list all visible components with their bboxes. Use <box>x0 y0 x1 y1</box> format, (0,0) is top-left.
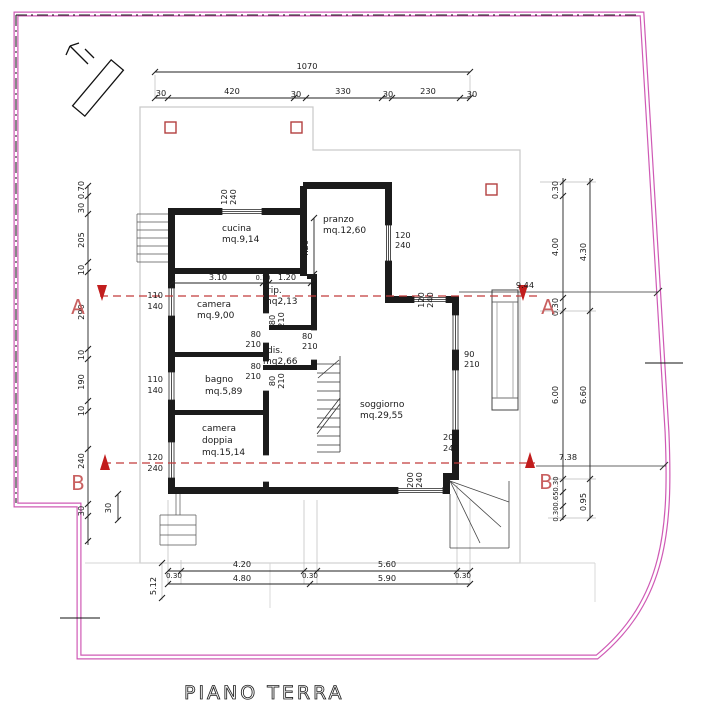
floor-title: PIANO TERRA <box>184 682 345 704</box>
room-label: mq.15,14 <box>202 448 245 458</box>
dim-label: 240 <box>414 472 424 488</box>
dim-label: 120 <box>147 452 163 462</box>
interior-stairs <box>317 356 340 452</box>
dim-label: 140 <box>147 385 163 395</box>
dim-label: 80 <box>302 331 312 341</box>
dim-label: 30 <box>103 503 113 513</box>
dim-label: 4.20 <box>233 559 251 569</box>
dim-label: 210 <box>464 359 480 369</box>
dim-label: 240 <box>147 463 163 473</box>
corner-fan-steps <box>450 481 509 548</box>
section-arrow <box>97 285 107 301</box>
dim-label: 190 <box>76 374 86 390</box>
room-label: mq.29,55 <box>360 411 403 421</box>
dim-label: 10 <box>76 350 86 360</box>
dim-label: 1.20 <box>278 272 296 282</box>
dim-label: 0.30 <box>302 571 318 580</box>
dim-label: 230 <box>420 86 436 96</box>
room-label: mq2,13 <box>263 297 298 307</box>
dim-label: 10 <box>76 406 86 416</box>
exterior-steps-top <box>137 214 168 262</box>
room-label: soggiorno <box>360 400 405 410</box>
room-label: bagno <box>205 375 234 385</box>
dim-label: 30 <box>383 89 393 99</box>
dim-label: 5.60 <box>378 559 396 569</box>
dim-label: 5.90 <box>378 573 396 583</box>
span-lines <box>459 288 668 470</box>
room-label: mq.12,60 <box>323 226 366 236</box>
dim-label: 0.30 <box>166 571 182 580</box>
dim-label: 0.70 <box>76 181 86 199</box>
dim-label: 30 <box>291 89 301 99</box>
dim-label: 210 <box>276 373 286 389</box>
room-label: cucina <box>222 224 251 234</box>
section-arrow <box>525 452 535 468</box>
dim-label: 10 <box>76 265 86 275</box>
room-label: mq2,66 <box>263 357 298 367</box>
dim-label: 0.30 <box>552 506 560 521</box>
pillar-marker <box>165 122 176 133</box>
boundary-inner-line <box>16 14 668 657</box>
dim-label: 4.30 <box>578 243 588 261</box>
room-label: mq.9,00 <box>197 311 235 321</box>
boundary-dashdot-line <box>16 15 640 503</box>
room-label: pranzo <box>323 215 354 225</box>
room-label: rip. <box>267 286 282 296</box>
room-label: mq.9,14 <box>222 235 260 245</box>
dim-label: 7.38 <box>559 452 577 462</box>
dim-label: 5.12 <box>148 577 158 595</box>
dim-label: 140 <box>147 301 163 311</box>
room-label: camera <box>202 424 236 434</box>
dim-label: 200 <box>443 432 459 442</box>
dim-label: 4.80 <box>233 573 251 583</box>
dim-label: 240 <box>425 292 435 308</box>
dim-label: 1070 <box>297 61 318 71</box>
dim-label: 0.65 <box>552 491 560 506</box>
room-label: dis. <box>267 346 283 356</box>
dim-label: 210 <box>245 339 261 349</box>
dim-label: 4.20 <box>300 240 310 258</box>
pillar-marker <box>486 184 497 195</box>
section-letter: A <box>541 295 555 319</box>
chimney-detail <box>492 290 518 410</box>
section-line-a <box>97 285 538 301</box>
dim-label: 240 <box>443 443 459 453</box>
section-letter: B <box>71 471 85 495</box>
floor-plan-drawing: PIANO TERRA 1070304203033030230300.70302… <box>0 0 710 722</box>
dim-label: 110 <box>147 290 163 300</box>
room-label: camera <box>197 300 231 310</box>
dim-label: 210 <box>276 312 286 328</box>
section-letter: A <box>71 295 85 319</box>
dim-label: 4.00 <box>550 238 560 256</box>
dim-label: 330 <box>335 86 351 96</box>
dim-label: 6.60 <box>578 386 588 404</box>
dim-label: 3.10 <box>209 272 227 282</box>
section-line-b <box>100 452 535 470</box>
dim-label: 80 <box>251 361 261 371</box>
dim-label: 9.44 <box>516 280 534 290</box>
dim-label: 120 <box>395 230 411 240</box>
dim-label: 30 <box>76 203 86 213</box>
dim-label: 6.00 <box>550 386 560 404</box>
dim-label: 80 <box>251 329 261 339</box>
boundary-outer-line <box>16 14 668 657</box>
room-label: mq.5,89 <box>205 387 243 397</box>
dim-label: 240 <box>76 453 86 469</box>
exterior-steps-bottom <box>160 494 196 545</box>
pillar-marker <box>291 122 302 133</box>
dim-label: 0.10 <box>256 274 271 282</box>
dim-label: 30 <box>76 506 86 516</box>
dim-label: 205 <box>76 232 86 248</box>
dim-label: 210 <box>302 341 318 351</box>
floor-plan-page: PIANO TERRA 1070304203033030230300.70302… <box>0 0 710 722</box>
room-label: doppia <box>202 436 233 446</box>
dim-label: 90 <box>464 349 474 359</box>
property-boundary <box>16 14 683 657</box>
section-arrow <box>100 454 110 470</box>
extension-lines <box>155 75 596 600</box>
dim-label: 0.30 <box>552 476 560 491</box>
dim-label: 240 <box>228 189 238 205</box>
dim-label: 110 <box>147 374 163 384</box>
north-arrow-icon <box>66 43 123 116</box>
dim-label: 0.30 <box>550 181 560 199</box>
dim-label: 420 <box>224 86 240 96</box>
section-letter: B <box>539 470 553 494</box>
dim-label: 30 <box>467 89 477 99</box>
dim-label: 210 <box>245 371 261 381</box>
dim-label: 30 <box>156 88 166 98</box>
dim-label: 0.30 <box>455 571 471 580</box>
dim-label: 0.95 <box>578 493 588 511</box>
dim-label: 240 <box>395 240 411 250</box>
